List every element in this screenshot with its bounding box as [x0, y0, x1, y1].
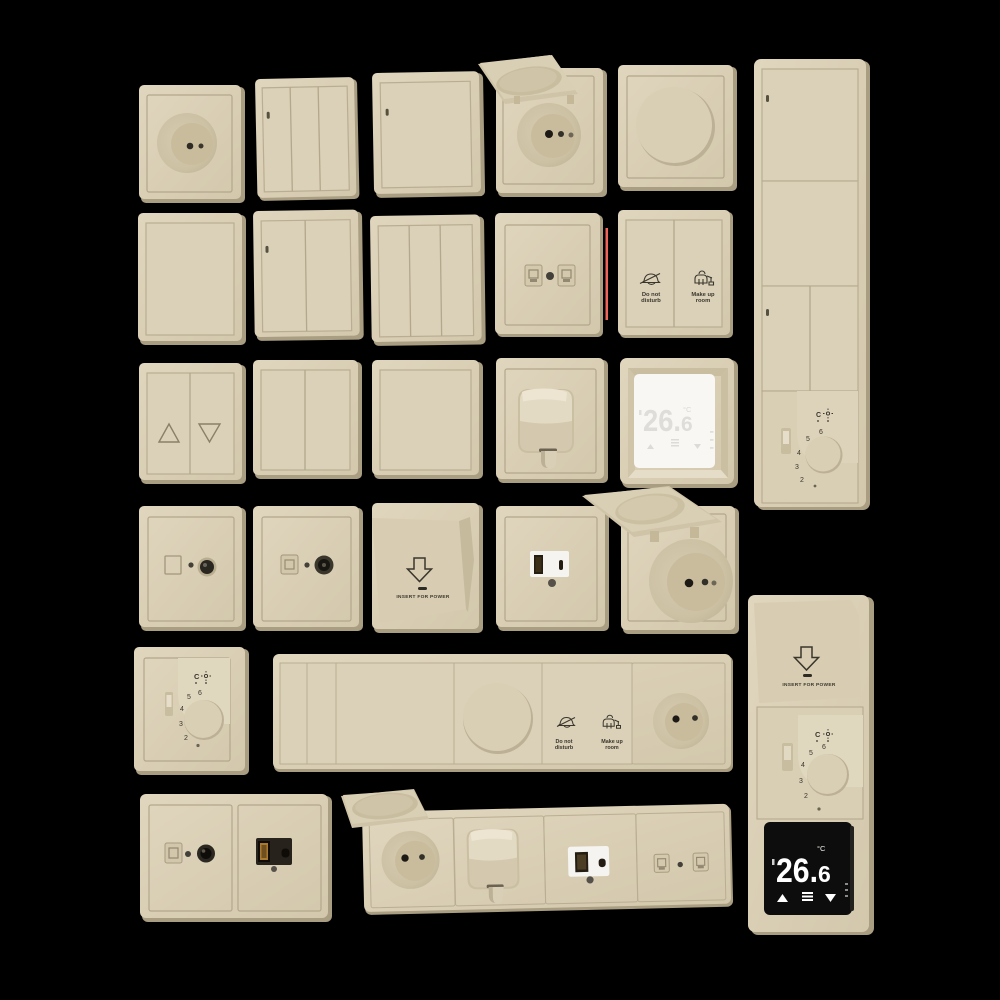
- svg-text:4: 4: [801, 762, 805, 769]
- svg-text:26.: 26.: [643, 403, 681, 438]
- svg-text:6: 6: [198, 690, 202, 697]
- svg-text:4: 4: [797, 450, 801, 457]
- svg-text:disturb: disturb: [641, 298, 661, 304]
- svg-text:INSERT FOR POWER: INSERT FOR POWER: [782, 682, 836, 688]
- svg-text:26.: 26.: [776, 852, 818, 890]
- svg-text:°C: °C: [817, 844, 826, 853]
- svg-text:2: 2: [804, 793, 808, 800]
- svg-text:6: 6: [681, 413, 693, 436]
- svg-text:C: C: [194, 672, 200, 681]
- svg-text:°C: °C: [683, 405, 692, 414]
- svg-text:room: room: [696, 298, 711, 304]
- svg-text:2: 2: [800, 477, 804, 484]
- svg-text:3: 3: [795, 464, 799, 471]
- svg-text:disturb: disturb: [555, 745, 574, 751]
- svg-text:room: room: [605, 745, 619, 751]
- svg-text:2: 2: [184, 735, 188, 742]
- svg-text:5: 5: [187, 694, 191, 701]
- svg-text:5: 5: [809, 750, 813, 757]
- svg-text:3: 3: [179, 721, 183, 728]
- svg-text:C: C: [815, 730, 821, 739]
- svg-text:6: 6: [819, 429, 823, 436]
- svg-text:6: 6: [818, 861, 831, 887]
- svg-text:3: 3: [799, 778, 803, 785]
- svg-text:5: 5: [806, 436, 810, 443]
- svg-text:4: 4: [180, 706, 184, 713]
- svg-text:C: C: [816, 412, 821, 419]
- svg-text:INSERT FOR POWER: INSERT FOR POWER: [396, 594, 450, 600]
- svg-text:6: 6: [822, 744, 826, 751]
